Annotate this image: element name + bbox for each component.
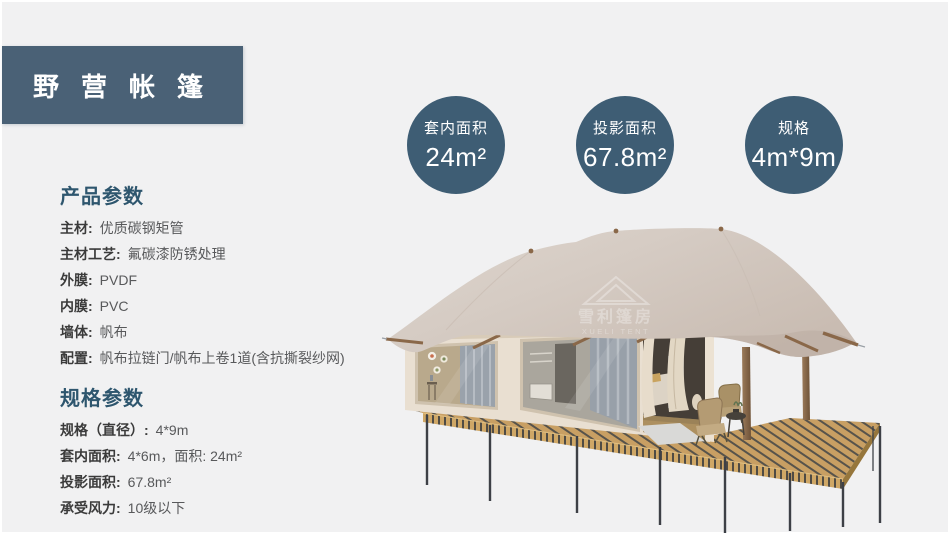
param-row: 承受风力:10级以下 [60, 500, 242, 516]
svg-text:XUELI TENT: XUELI TENT [582, 327, 650, 336]
spec-params-section: 规格参数 规格（直径）:4*9m 套内面积:4*6m，面积: 24m² 投影面积… [60, 382, 242, 526]
param-row: 内膜:PVC [60, 298, 345, 314]
section-heading: 产品参数 [60, 180, 345, 209]
param-row: 墙体:帆布 [60, 324, 345, 340]
badge-projection-area: 投影面积 67.8m² [576, 96, 674, 194]
tent-render: 雪利篷房 XUELI TENT [380, 204, 950, 534]
badge-label: 规格 [778, 117, 810, 138]
badge-size: 规格 4m*9m [745, 96, 843, 194]
param-row: 配置:帆布拉链门/帆布上卷1道(含抗撕裂纱网) [60, 350, 345, 366]
param-row: 规格（直径）:4*9m [60, 422, 242, 438]
param-row: 外膜:PVDF [60, 272, 345, 288]
product-slide: 野营帐篷 套内面积 24m² 投影面积 67.8m² 规格 4m*9m 产品参数… [0, 0, 950, 534]
badge-label: 套内面积 [424, 117, 488, 138]
section-heading: 规格参数 [60, 382, 242, 411]
param-row: 套内面积:4*6m，面积: 24m² [60, 448, 242, 464]
badge-value: 24m² [425, 142, 486, 173]
canopy: 雪利篷房 XUELI TENT [382, 227, 865, 357]
window-left [415, 341, 498, 410]
product-params-section: 产品参数 主材:优质碳钢矩管 主材工艺:氟碳漆防锈处理 外膜:PVDF 内膜:P… [60, 180, 345, 376]
svg-text:雪利篷房: 雪利篷房 [578, 307, 654, 326]
badge-value: 67.8m² [583, 142, 667, 173]
param-row: 主材工艺:氟碳漆防锈处理 [60, 246, 345, 262]
badge-value: 4m*9m [752, 142, 837, 173]
param-row: 主材:优质碳钢矩管 [60, 220, 345, 236]
badge-label: 投影面积 [593, 117, 657, 138]
param-row: 投影面积:67.8m² [60, 474, 242, 490]
badge-inner-area: 套内面积 24m² [407, 96, 505, 194]
page-title: 野营帐篷 [2, 46, 243, 124]
